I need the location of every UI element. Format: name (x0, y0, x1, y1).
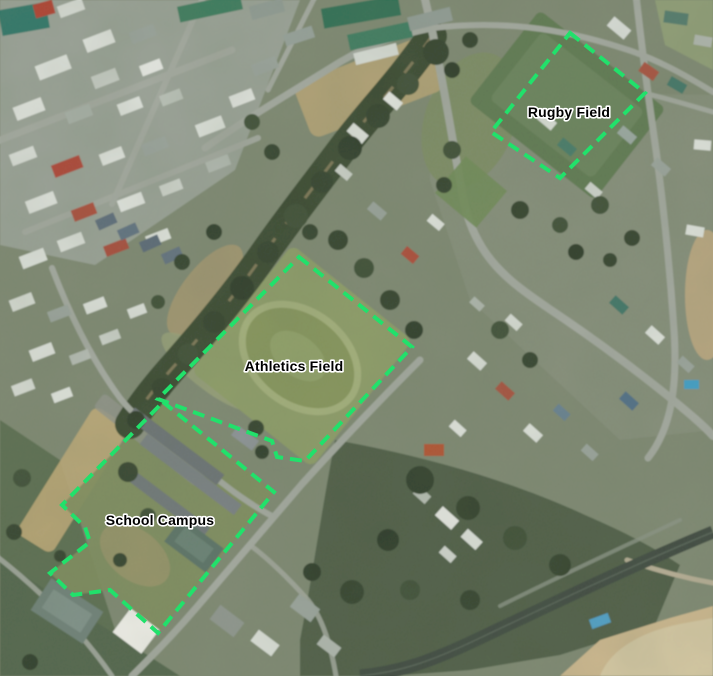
map-canvas[interactable]: Rugby Field Athletics Field School Campu… (0, 0, 713, 676)
feature-school-campus: School Campus (50, 402, 274, 633)
feature-rugby-field: Rugby Field (491, 33, 645, 178)
feature-label-school-campus: School Campus (106, 512, 214, 528)
feature-label-athletics-field: Athletics Field (245, 358, 344, 374)
feature-label-rugby-field: Rugby Field (528, 104, 610, 120)
vector-feature-overlay: Rugby Field Athletics Field School Campu… (0, 0, 713, 676)
